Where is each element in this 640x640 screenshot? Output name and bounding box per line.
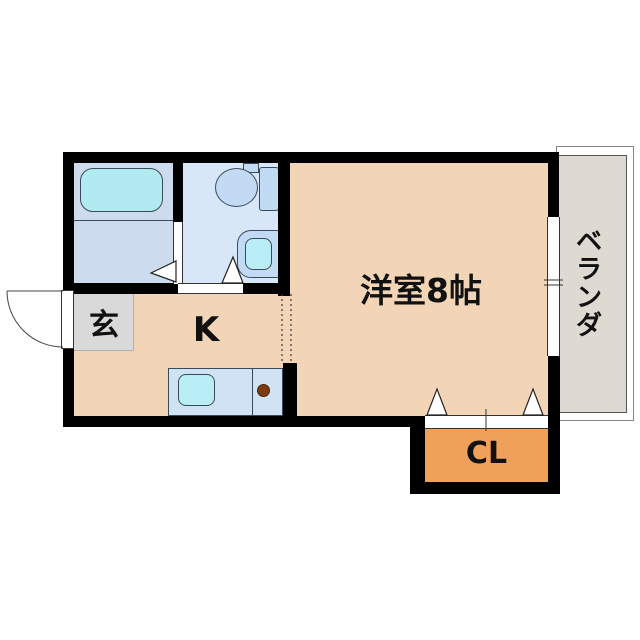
entrance-door-swing-arc [7, 291, 63, 347]
floor-plan: 洋室8帖 K 玄 CL ベランダ [0, 0, 640, 640]
bathtub-platform-line [74, 220, 173, 221]
bathroom-door-opening [173, 222, 183, 284]
vanity-sink-bowl [245, 238, 272, 270]
top-wall [63, 152, 559, 163]
toilet-door-opening [178, 283, 243, 294]
toilet-east-wall [278, 152, 290, 296]
western-room-label: 洋室8帖 [321, 267, 521, 309]
east-wall-upper [548, 152, 559, 218]
kitchen-sink [178, 374, 215, 406]
east-wall-lower [548, 355, 560, 494]
toilet-bowl [215, 168, 258, 207]
balcony-label: ベランダ [573, 228, 605, 352]
entrance-door-leaf [61, 290, 74, 349]
bathtub [80, 168, 163, 212]
closet-bottom-wall [410, 482, 560, 494]
kitchen-label: K [181, 309, 231, 351]
balcony-sliding-window [547, 217, 560, 356]
bath-toilet-divider-wall [173, 152, 183, 222]
entrance-label: 玄 [74, 293, 134, 351]
left-wall-upper [63, 152, 74, 291]
closet-label: CL [425, 430, 548, 476]
bottom-wall [63, 416, 425, 427]
kitchen-room-wall-stub [283, 363, 297, 416]
closet-sliding-door [425, 415, 548, 429]
stove-burner [257, 384, 270, 397]
bath-bottom-wall-right [243, 283, 290, 294]
toilet-tank [259, 167, 279, 211]
